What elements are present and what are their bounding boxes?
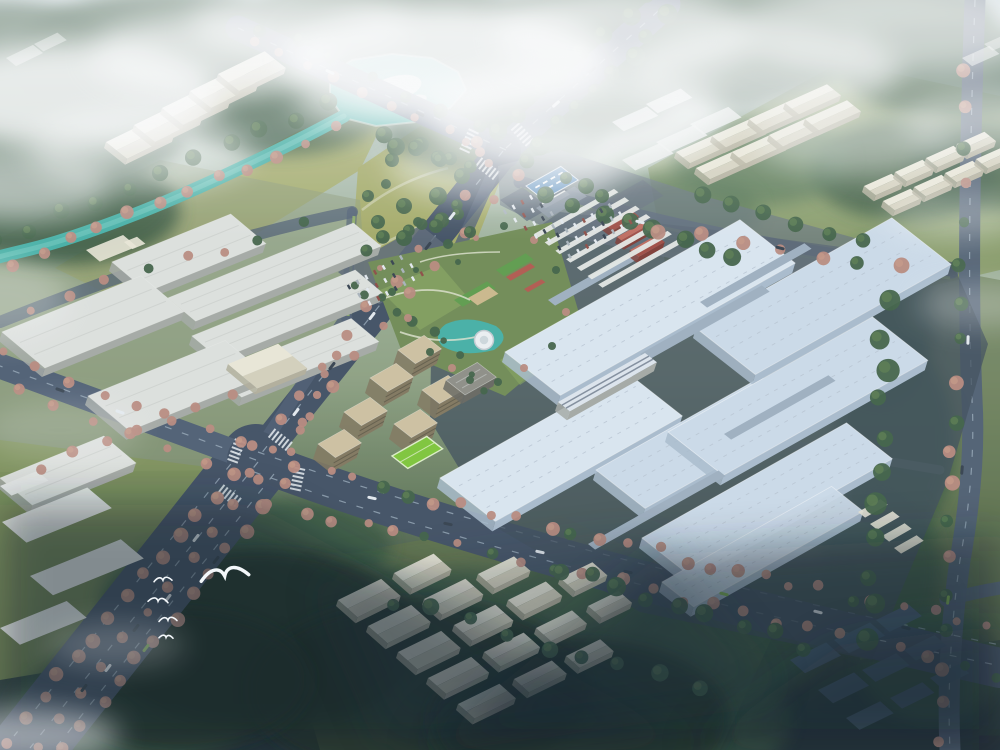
- scene-canvas: [0, 0, 1000, 750]
- cool-tint: [0, 0, 1000, 750]
- aerial-industrial-park-rendering: [0, 0, 1000, 750]
- atmosphere-overlay: [0, 0, 1000, 750]
